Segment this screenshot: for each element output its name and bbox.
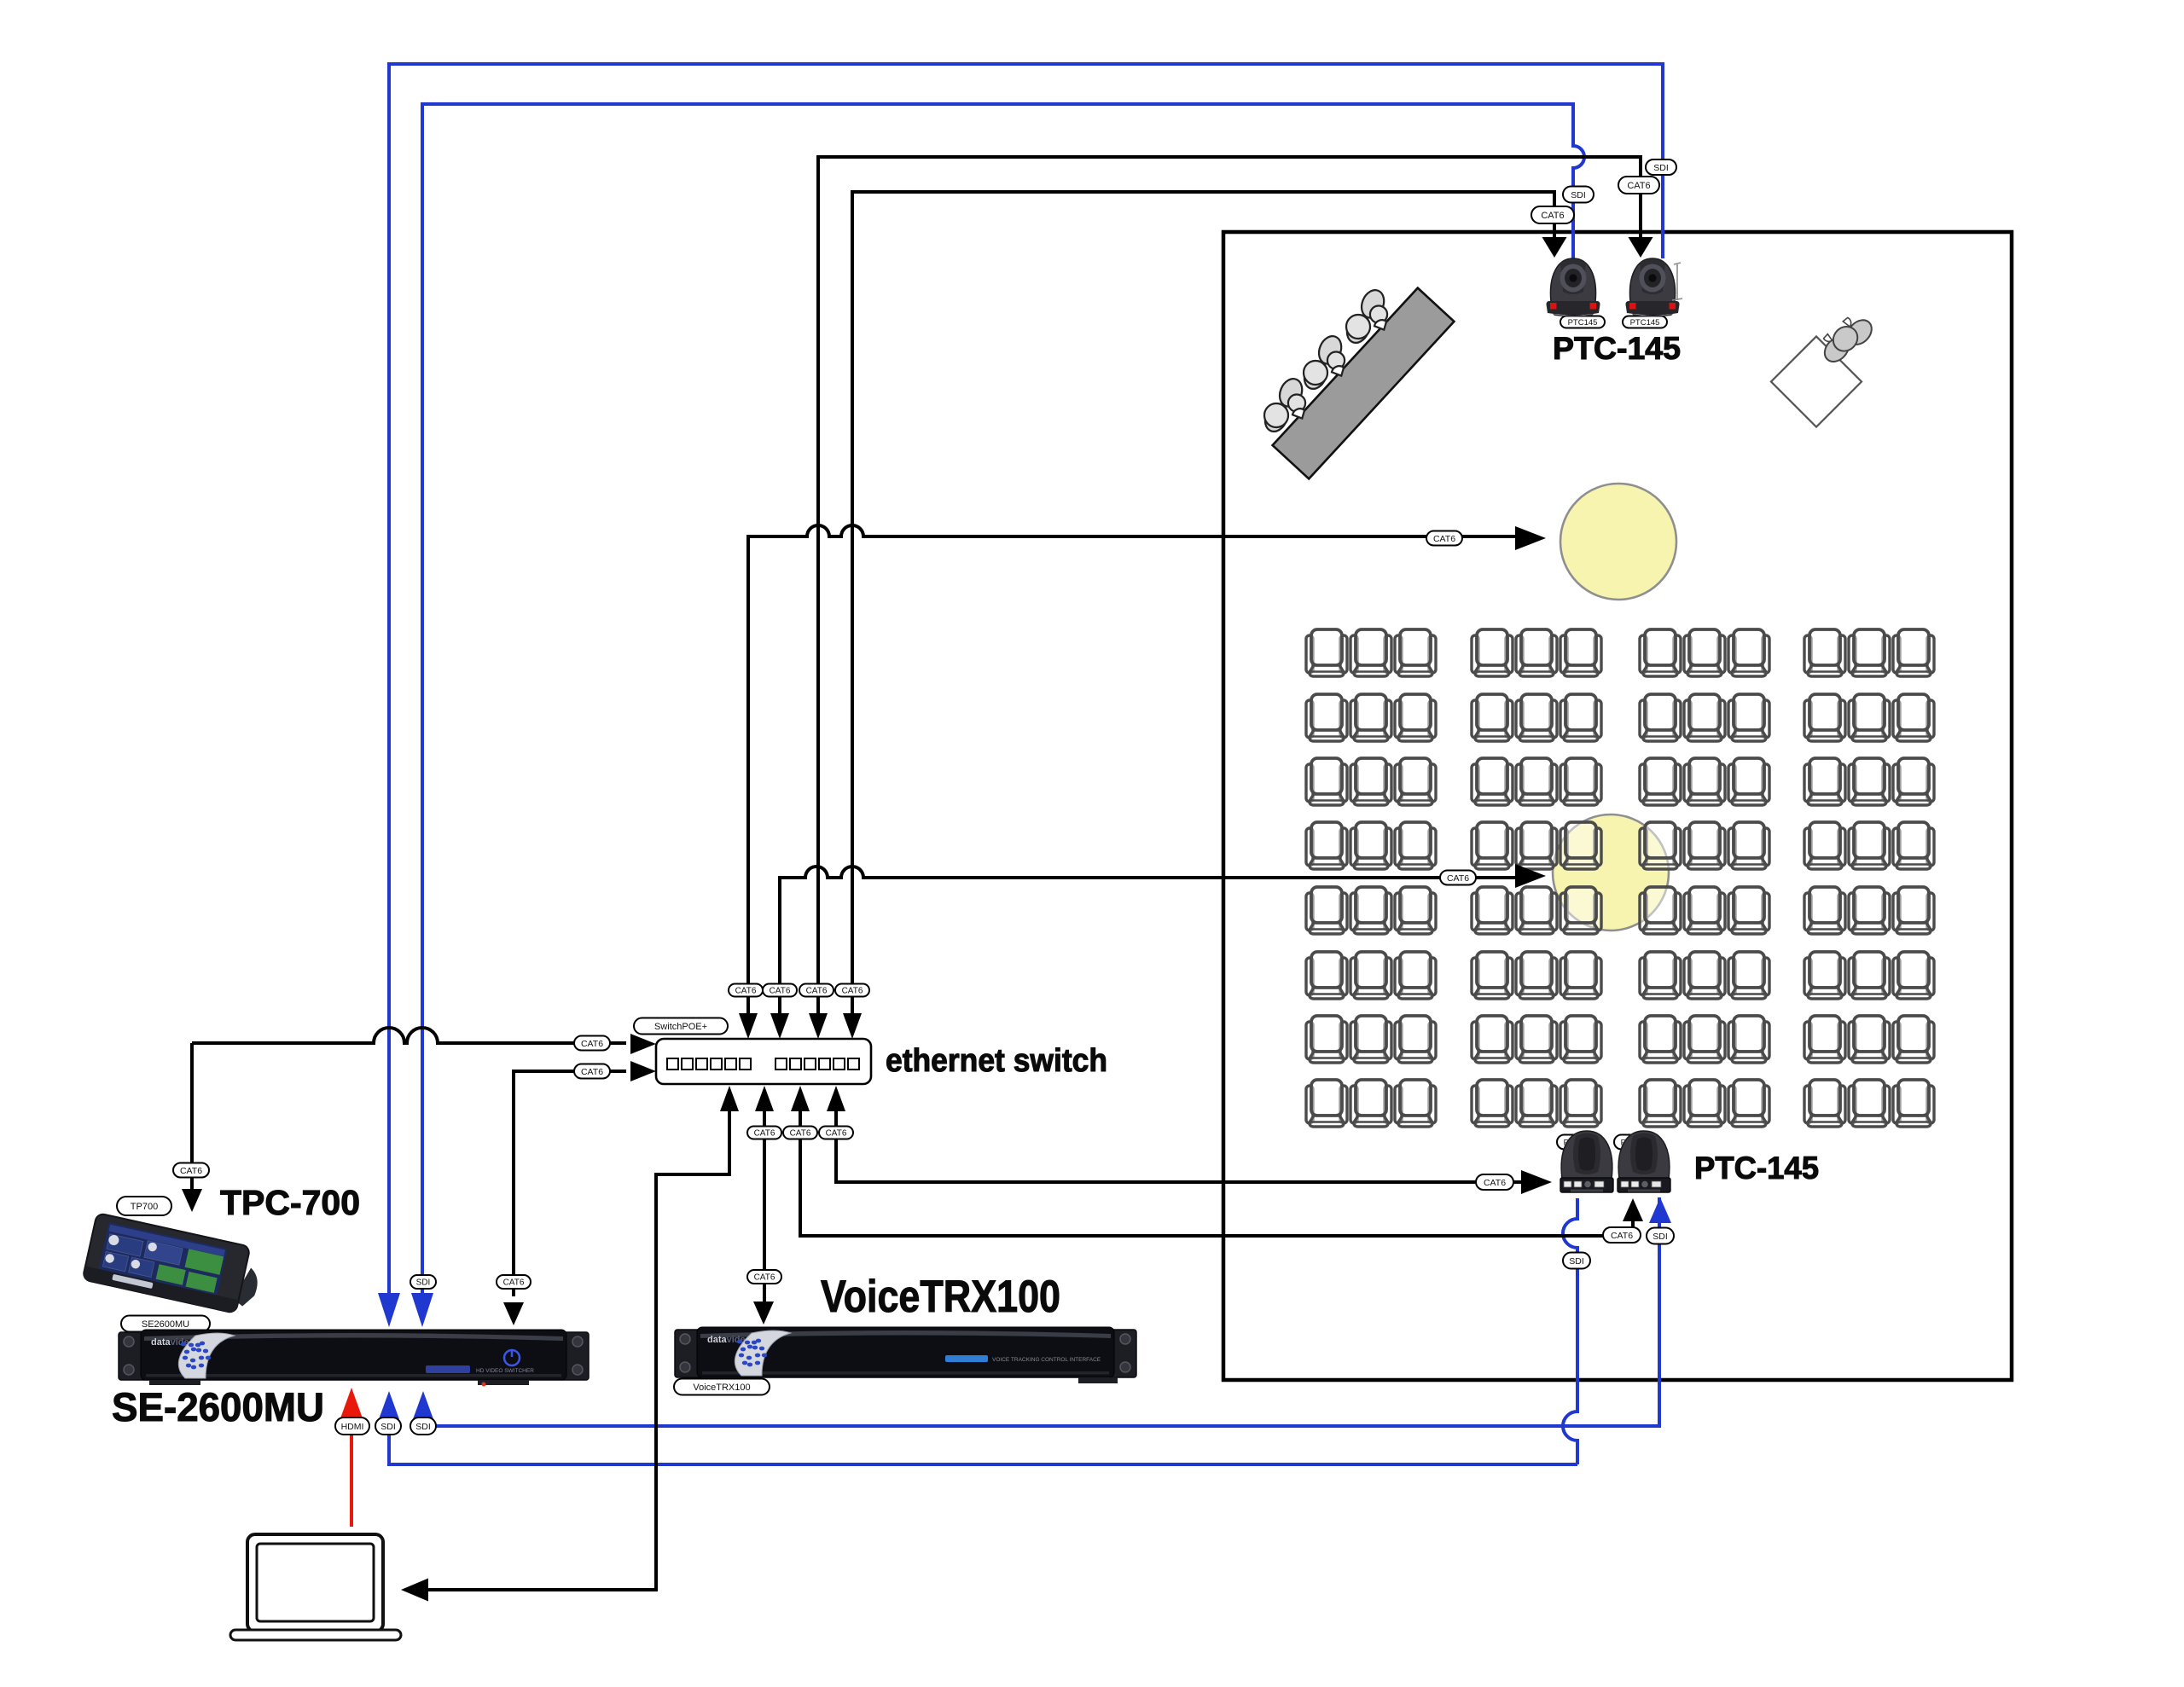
svg-text:SDI: SDI xyxy=(380,1422,396,1432)
svg-text:CAT6: CAT6 xyxy=(806,987,828,996)
svg-text:CAT6: CAT6 xyxy=(1541,211,1564,221)
svg-text:CAT6: CAT6 xyxy=(826,1129,847,1139)
svg-text:SDI: SDI xyxy=(416,1278,431,1288)
svg-text:CAT6: CAT6 xyxy=(754,1129,775,1139)
svg-text:TPC-700: TPC-700 xyxy=(220,1183,360,1222)
svg-text:PTC-145: PTC-145 xyxy=(1694,1151,1819,1186)
svg-text:CAT6: CAT6 xyxy=(1484,1178,1506,1188)
svg-text:PTC145: PTC145 xyxy=(1568,318,1598,328)
svg-text:CAT6: CAT6 xyxy=(735,987,757,996)
svg-text:VoiceTRX100: VoiceTRX100 xyxy=(821,1272,1060,1322)
svg-text:SE2600MU: SE2600MU xyxy=(142,1319,189,1330)
svg-text:CAT6: CAT6 xyxy=(754,1273,775,1283)
svg-text:VoiceTRX100: VoiceTRX100 xyxy=(693,1383,750,1393)
svg-text:HDMI: HDMI xyxy=(341,1422,364,1432)
svg-text:SDI: SDI xyxy=(1571,190,1586,200)
svg-text:CAT6: CAT6 xyxy=(1433,534,1455,544)
svg-text:CAT6: CAT6 xyxy=(842,987,863,996)
svg-text:CAT6: CAT6 xyxy=(1611,1231,1633,1241)
svg-text:SE-2600MU: SE-2600MU xyxy=(112,1384,324,1429)
svg-text:ethernet switch: ethernet switch xyxy=(886,1043,1107,1079)
svg-text:TP700: TP700 xyxy=(131,1202,158,1212)
svg-text:CAT6: CAT6 xyxy=(790,1129,811,1139)
svg-text:PTC-145: PTC-145 xyxy=(1553,331,1681,366)
svg-text:CAT6: CAT6 xyxy=(180,1166,202,1176)
svg-text:CAT6: CAT6 xyxy=(770,987,791,996)
svg-text:PTC145: PTC145 xyxy=(1630,318,1660,328)
svg-text:CAT6: CAT6 xyxy=(581,1039,603,1049)
svg-text:SDI: SDI xyxy=(415,1422,431,1432)
svg-text:CAT6: CAT6 xyxy=(581,1067,603,1077)
svg-text:SDI: SDI xyxy=(1653,163,1669,173)
svg-text:SDI: SDI xyxy=(1653,1232,1668,1242)
svg-text:SwitchPOE+: SwitchPOE+ xyxy=(654,1022,707,1032)
svg-text:CAT6: CAT6 xyxy=(1627,181,1650,191)
svg-text:CAT6: CAT6 xyxy=(503,1278,525,1288)
svg-text:HD VIDEO SWITCHER: HD VIDEO SWITCHER xyxy=(476,1368,534,1374)
svg-text:SDI: SDI xyxy=(1569,1256,1584,1267)
svg-text:CAT6: CAT6 xyxy=(1447,873,1469,884)
svg-text:VOICE TRACKING CONTROL INTERFA: VOICE TRACKING CONTROL INTERFACE xyxy=(992,1357,1101,1363)
